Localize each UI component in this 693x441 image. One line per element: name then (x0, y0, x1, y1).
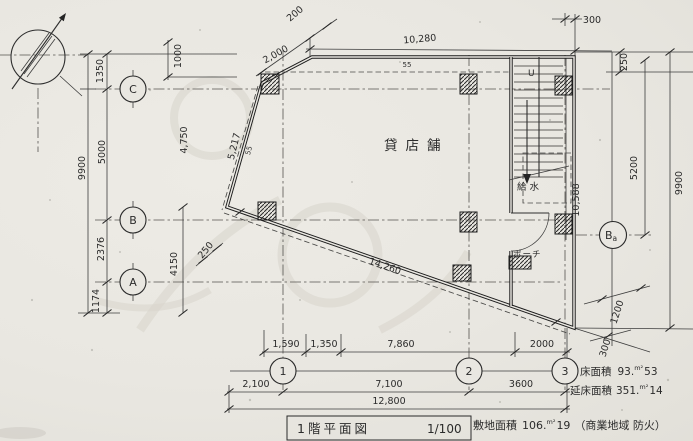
room-label-shop: 貸店舗 (384, 138, 449, 154)
water-area (523, 153, 571, 203)
north-arrow (0, 13, 86, 152)
dim-2100: 2,100 (242, 379, 269, 390)
dim-1350-bottom: 1,350 (310, 339, 337, 350)
floor-plan-drawing: C B A 1 2 3 Ba 1350 5000 9900 2376 1174 … (0, 0, 693, 441)
dim-55-wall: 55 (244, 145, 254, 156)
column (460, 74, 477, 94)
dim-10588: 10,588 (571, 183, 582, 216)
north-arrowhead (59, 13, 66, 21)
dim-7100: 7,100 (375, 379, 402, 390)
grid-label-3: 3 (562, 365, 569, 378)
scanned-floor-plan-sheet: C B A 1 2 3 Ba 1350 5000 9900 2376 1174 … (0, 0, 693, 441)
dim-5200: 5200 (629, 156, 640, 180)
column (258, 202, 276, 220)
dim-4750: 4,750 (179, 126, 190, 153)
dim-4150: 4150 (169, 252, 180, 276)
total-floor-area-text: 延床面積351.m²14 (570, 383, 663, 397)
drawing-title: 1階平面図 (297, 421, 370, 436)
dim-12800: 12,800 (372, 396, 405, 407)
title-block: 1階平面図 1/100 (287, 416, 471, 440)
dim-250-top: 250 (619, 53, 630, 71)
dim-55-inner: 55 (403, 61, 412, 69)
column (261, 74, 279, 94)
dim-7860: 7,860 (387, 339, 414, 350)
dim-300-top: 300 (583, 15, 601, 26)
room-label-water: 給水 (517, 181, 542, 193)
room-label-porch: ポーチ (513, 250, 542, 260)
grid-label-2: 2 (466, 365, 473, 378)
grid-label-a: A (129, 276, 137, 289)
floor-area-text: 床面積93.m²53 (580, 364, 658, 378)
door-swing-arc (511, 213, 549, 251)
dim-1174: 1174 (91, 289, 102, 313)
site-area-text: 敷地面積106.m²19（商業地域 防火） (473, 418, 666, 432)
compass-circle (11, 30, 65, 84)
column (453, 265, 471, 281)
grid-label-1: 1 (280, 365, 287, 378)
column (555, 214, 572, 234)
dim-2376: 2376 (96, 237, 107, 261)
dim-1000: 1000 (173, 44, 184, 68)
dim-5000: 5000 (97, 140, 108, 164)
dim-9900-right: 9900 (674, 171, 685, 195)
dim-1200: 1200 (609, 299, 627, 325)
dim-3600: 3600 (509, 379, 533, 390)
grid-label-b: B (129, 214, 137, 227)
dim-9900-left: 9900 (77, 156, 88, 180)
dimension-ticks (84, 16, 675, 413)
stair-up-label: U (528, 69, 535, 79)
column (460, 212, 477, 232)
drawing-scale: 1/100 (427, 422, 462, 436)
dim-300-corner: 300 (598, 338, 614, 359)
dim-2000-diag: 2,000 (261, 43, 290, 66)
entrance-door (511, 213, 549, 251)
column (555, 76, 572, 95)
dim-200: 200 (285, 4, 306, 24)
water-area-outline (523, 153, 571, 203)
dim-1590: 1,590 (272, 339, 299, 350)
dim-10280: 10,280 (403, 33, 437, 47)
grid-label-c: C (129, 83, 137, 96)
dim-2000-bottom: 2000 (530, 339, 554, 350)
dim-1350-left: 1350 (95, 59, 106, 83)
